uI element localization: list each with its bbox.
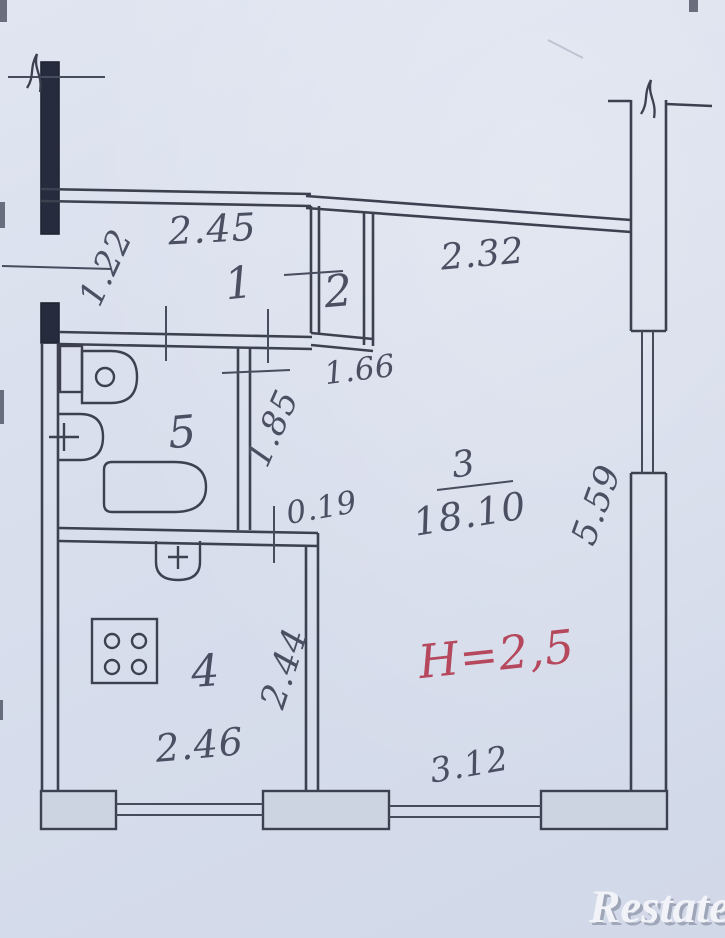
dim-living-top: 2.32 (438, 230, 526, 278)
exterior-wall-left (41, 62, 59, 792)
room-label-bath: 5 (166, 406, 199, 459)
ceiling-height-label: H=2,5 (415, 619, 578, 689)
wall-hall-bottom (59, 332, 312, 349)
room-number-living: 3 (449, 443, 478, 487)
wall-break-symbol-left (27, 54, 41, 92)
room-label-living: 3 18.10 (410, 443, 529, 545)
exterior-wall-bottom (41, 791, 667, 829)
room-label-hall: 1 (222, 257, 256, 311)
wall-kitchen-top (59, 528, 318, 546)
exterior-walls (41, 62, 712, 830)
exterior-wall-top-right (306, 196, 631, 232)
window-bottom-kitchen (116, 804, 263, 815)
watermark-text: Restate (588, 881, 725, 933)
dim-hall-width: 2.45 (166, 205, 258, 254)
dim-living-bottom: 3.12 (427, 738, 512, 791)
dim-living-right: 5.59 (564, 460, 630, 551)
toilet-fixture (60, 346, 137, 403)
room-label-kitchen: 4 (188, 645, 221, 698)
kitchen-fixtures (92, 541, 200, 683)
floorplan-svg: 2.45 1.22 2.32 1.66 1.85 0.19 5.59 2.44 … (0, 0, 725, 938)
floorplan-scan: 2.45 1.22 2.32 1.66 1.85 0.19 5.59 2.44 … (0, 0, 725, 938)
wall-break-symbol-right (641, 80, 655, 118)
dim-wall-step: 0.19 (284, 484, 360, 532)
window-right (642, 331, 653, 473)
dim-kitchen-bottom: 2.46 (153, 719, 246, 771)
room-area-living: 18.10 (410, 483, 529, 544)
stove-fixture (92, 619, 157, 683)
exterior-wall-right (608, 100, 712, 830)
dim-closet-bottom: 1.66 (322, 348, 397, 392)
room-label-closet: 2 (321, 265, 355, 318)
kitchen-sink-fixture (156, 541, 200, 580)
bathtub-fixture (104, 462, 206, 512)
window-bottom-living (389, 806, 541, 817)
exterior-wall-top-left (41, 189, 311, 206)
watermark: Restate Restate (588, 881, 725, 936)
